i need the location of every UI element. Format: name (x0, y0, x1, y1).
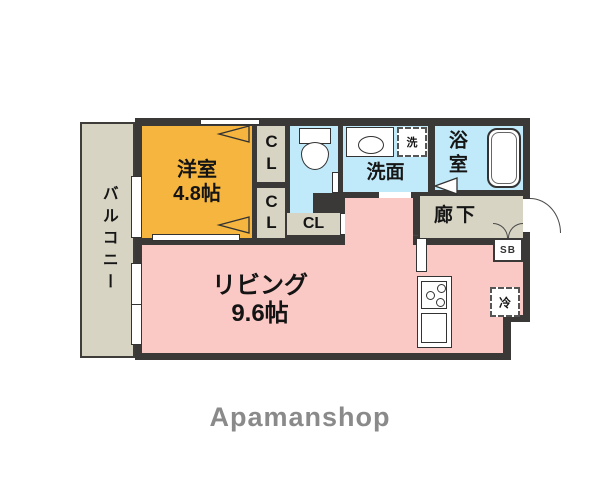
wall-segment (313, 193, 345, 213)
washing-machine-label: 洗 (407, 134, 418, 150)
bath-door-mark (431, 176, 459, 196)
closet-door-mark-top (215, 124, 251, 144)
hallway-label: 廊下 (434, 205, 478, 227)
toilet-bowl (301, 142, 329, 170)
closet-bottom: CL (257, 188, 285, 238)
closet-bottom-label: CL (261, 192, 281, 234)
washroom-label: 洗面 (366, 162, 404, 184)
stove (421, 281, 447, 309)
stove-burner (426, 291, 435, 300)
sink-bowl (358, 136, 384, 154)
hallway-living-door (416, 238, 427, 272)
toilet-door (332, 172, 339, 193)
balcony-label: バルコニー (98, 185, 116, 295)
window-western (131, 176, 142, 238)
bathtub (487, 128, 521, 188)
window-mullion (132, 304, 141, 305)
sink-counter (346, 127, 394, 157)
closet-top: CL (257, 126, 285, 182)
western-room-size: 4.8帖 (173, 182, 221, 206)
western-room-label: 洋室 (173, 158, 221, 182)
sliding-door-western (152, 234, 240, 241)
entrance-door-arc (530, 198, 561, 233)
living-corridor (345, 198, 413, 245)
window-living (131, 263, 142, 345)
closet-hall: CL (287, 213, 340, 235)
shoe-box: SB (493, 238, 523, 262)
room-washroom: 洗 洗面 (343, 126, 428, 192)
building-notch (511, 322, 530, 360)
entrance-opening (523, 198, 530, 233)
living-label: リビング (212, 272, 308, 300)
refrigerator-space: 冷 (490, 287, 520, 317)
refrigerator-label: 冷 (499, 294, 511, 311)
closet-door-mark-bottom (215, 215, 251, 235)
stove-burner (436, 298, 445, 307)
shoe-box-label: SB (500, 245, 516, 256)
living-label-group: リビング 9.6帖 (150, 272, 370, 328)
logo-text: Apamanshop (0, 402, 600, 433)
closet-hall-label: CL (303, 215, 324, 233)
stove-burner (437, 284, 446, 293)
kitchen-unit (417, 276, 452, 348)
kitchen-counter (421, 313, 447, 343)
room-hallway: 廊下 (420, 196, 523, 238)
balcony: バルコニー (80, 122, 135, 358)
living-size: 9.6帖 (212, 300, 308, 328)
bathroom-label: 浴室 (445, 130, 467, 178)
closet-top-label: CL (261, 132, 281, 176)
washing-machine-space: 洗 (397, 127, 427, 157)
window-top (200, 119, 260, 125)
bathtub-inner (491, 132, 517, 184)
